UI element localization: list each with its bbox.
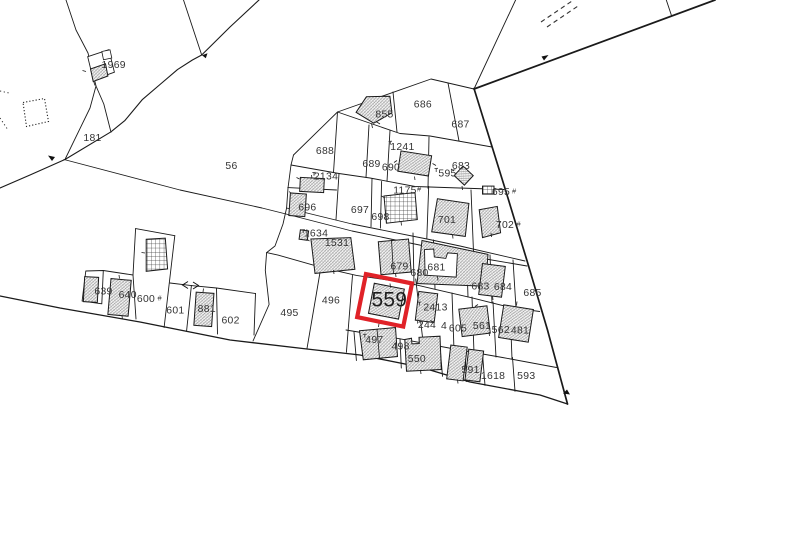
svg-text:481: 481	[511, 326, 529, 337]
svg-text:600: 600	[137, 294, 155, 305]
svg-text:695: 695	[492, 187, 510, 198]
svg-text:687: 687	[451, 120, 469, 131]
svg-text:681: 681	[427, 263, 445, 274]
svg-text:559: 559	[371, 289, 407, 312]
svg-text:2134: 2134	[314, 172, 338, 183]
svg-text:498: 498	[391, 342, 409, 353]
svg-text:496: 496	[322, 296, 340, 307]
svg-text:562: 562	[492, 325, 510, 336]
svg-text:601: 601	[166, 305, 184, 316]
svg-text:1531: 1531	[325, 238, 349, 249]
svg-text:4: 4	[441, 321, 447, 332]
svg-text:683: 683	[471, 282, 489, 293]
svg-text:2413: 2413	[423, 303, 447, 314]
svg-text:640: 640	[119, 290, 137, 301]
svg-text:679: 679	[390, 262, 408, 273]
svg-text:550: 550	[408, 354, 426, 365]
svg-text:881: 881	[198, 304, 216, 315]
svg-text:686: 686	[414, 100, 432, 111]
svg-text:1618: 1618	[481, 371, 505, 382]
svg-text:683: 683	[452, 161, 470, 172]
svg-text:689: 689	[362, 159, 380, 170]
svg-text:602: 602	[221, 315, 239, 326]
svg-text:1241: 1241	[390, 142, 414, 153]
svg-text:591: 591	[461, 365, 479, 376]
svg-text:701: 701	[438, 215, 456, 226]
svg-text:56: 56	[225, 161, 237, 172]
svg-text:1969: 1969	[102, 60, 126, 71]
svg-text:702: 702	[496, 220, 514, 231]
svg-text:855: 855	[375, 110, 393, 121]
svg-text:680: 680	[410, 268, 428, 279]
svg-text:593: 593	[517, 371, 535, 382]
svg-text:690: 690	[382, 163, 400, 174]
svg-text:561: 561	[473, 321, 491, 332]
svg-text:697: 697	[351, 205, 369, 216]
svg-text:244: 244	[418, 320, 436, 331]
svg-text:685: 685	[523, 288, 541, 299]
svg-text:639: 639	[94, 287, 112, 298]
svg-text:495: 495	[280, 308, 298, 319]
svg-text:181: 181	[83, 133, 101, 144]
svg-text:698: 698	[371, 212, 389, 223]
svg-text:688: 688	[316, 146, 334, 157]
svg-text:684: 684	[494, 282, 512, 293]
svg-text:497: 497	[365, 335, 383, 346]
svg-text:605: 605	[449, 323, 467, 334]
svg-text:696: 696	[298, 203, 316, 214]
svg-text:1175: 1175	[393, 186, 417, 197]
